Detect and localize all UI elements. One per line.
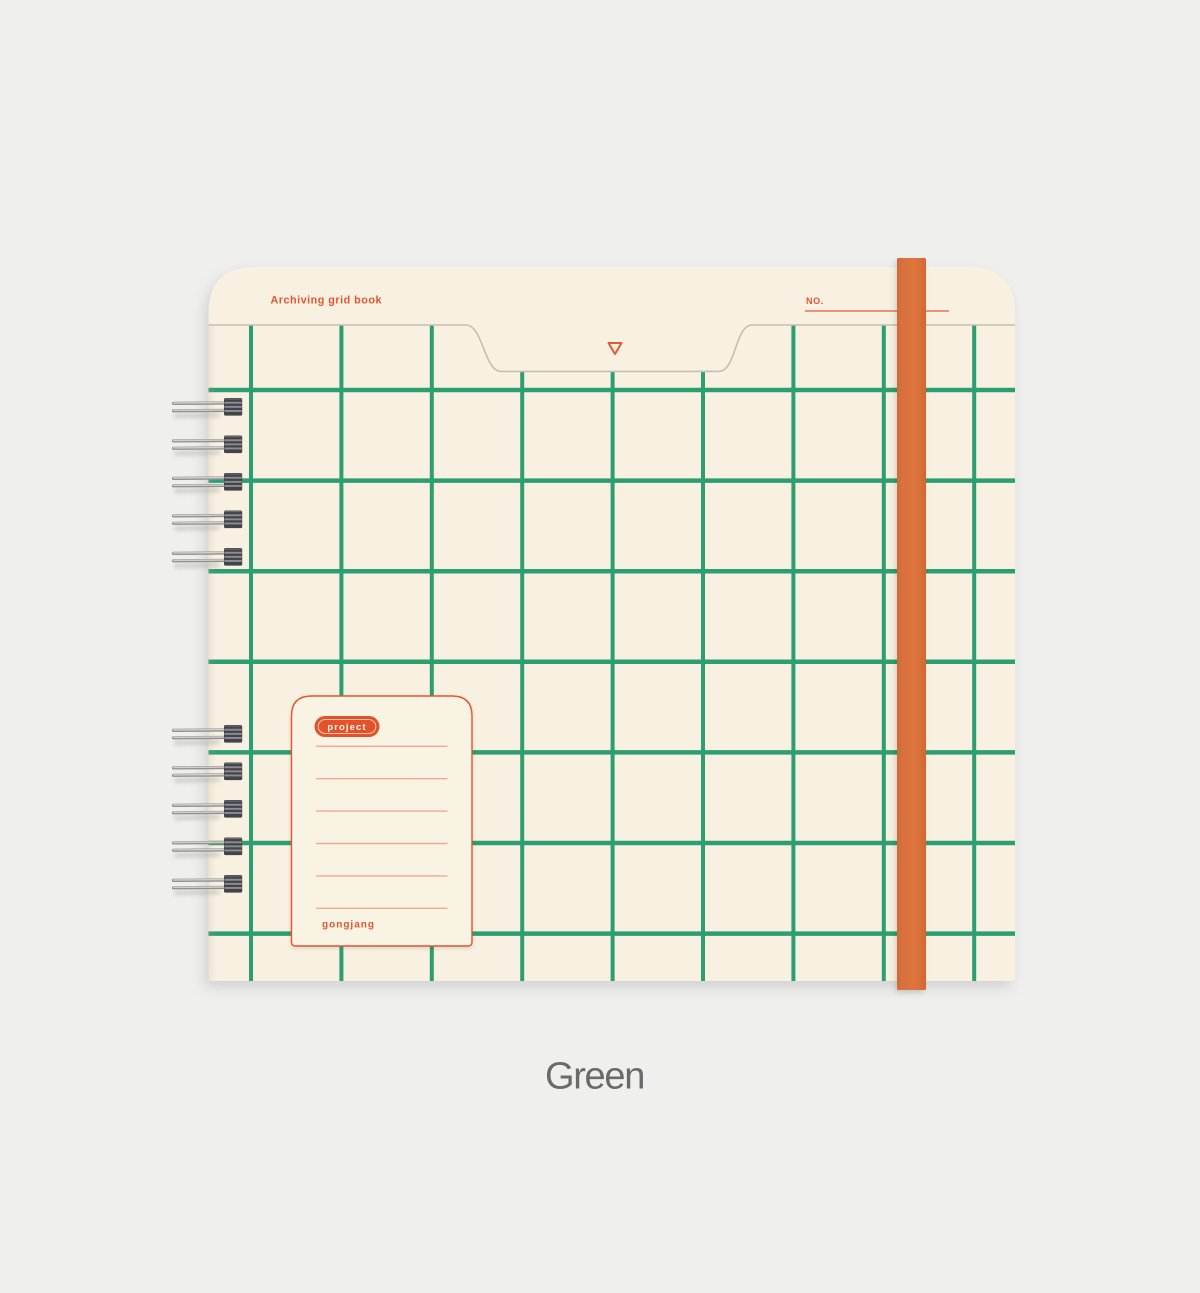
svg-text:Green: Green xyxy=(545,1056,644,1098)
svg-text:Archiving grid book: Archiving grid book xyxy=(271,295,383,307)
svg-text:project: project xyxy=(327,722,366,733)
svg-text:gongjang: gongjang xyxy=(322,920,375,931)
svg-text:NO.: NO. xyxy=(806,296,824,306)
